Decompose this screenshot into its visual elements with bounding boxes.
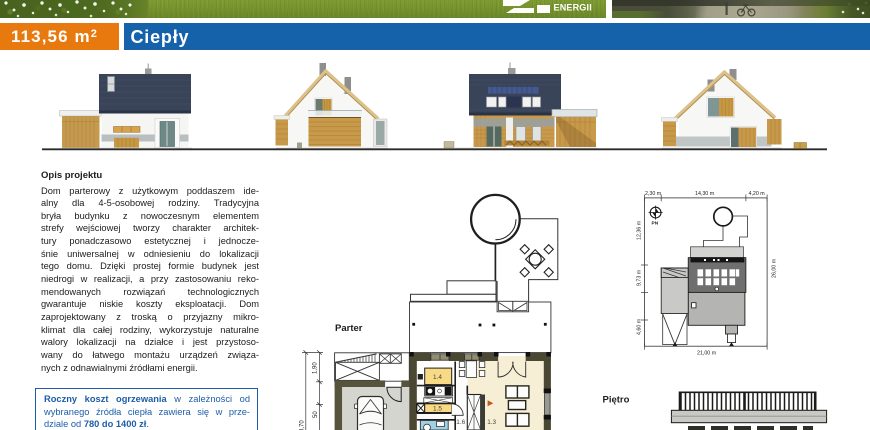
svg-text:12,36 m: 12,36 m xyxy=(637,220,643,240)
svg-text:PN: PN xyxy=(652,221,659,227)
svg-text:26,00 m: 26,00 m xyxy=(772,258,778,278)
svg-text:1.4: 1.4 xyxy=(433,374,442,381)
svg-text:21,00 m: 21,00 m xyxy=(697,351,717,357)
svg-text:1.5: 1.5 xyxy=(433,406,442,413)
svg-text:1,90: 1,90 xyxy=(313,362,319,374)
svg-text:2,30 m: 2,30 m xyxy=(645,191,662,197)
svg-text:1.6: 1.6 xyxy=(456,419,465,426)
svg-text:8,70: 8,70 xyxy=(300,420,306,430)
svg-text:9,73 m: 9,73 m xyxy=(637,269,643,286)
svg-text:Piętro: Piętro xyxy=(603,395,630,406)
svg-text:Parter: Parter xyxy=(335,323,363,334)
svg-text:14,30 m: 14,30 m xyxy=(695,191,715,197)
svg-text:50: 50 xyxy=(313,411,319,418)
svg-text:1.3: 1.3 xyxy=(487,419,496,426)
svg-text:4,20 m: 4,20 m xyxy=(749,191,766,197)
svg-text:4,60 m: 4,60 m xyxy=(637,318,643,335)
